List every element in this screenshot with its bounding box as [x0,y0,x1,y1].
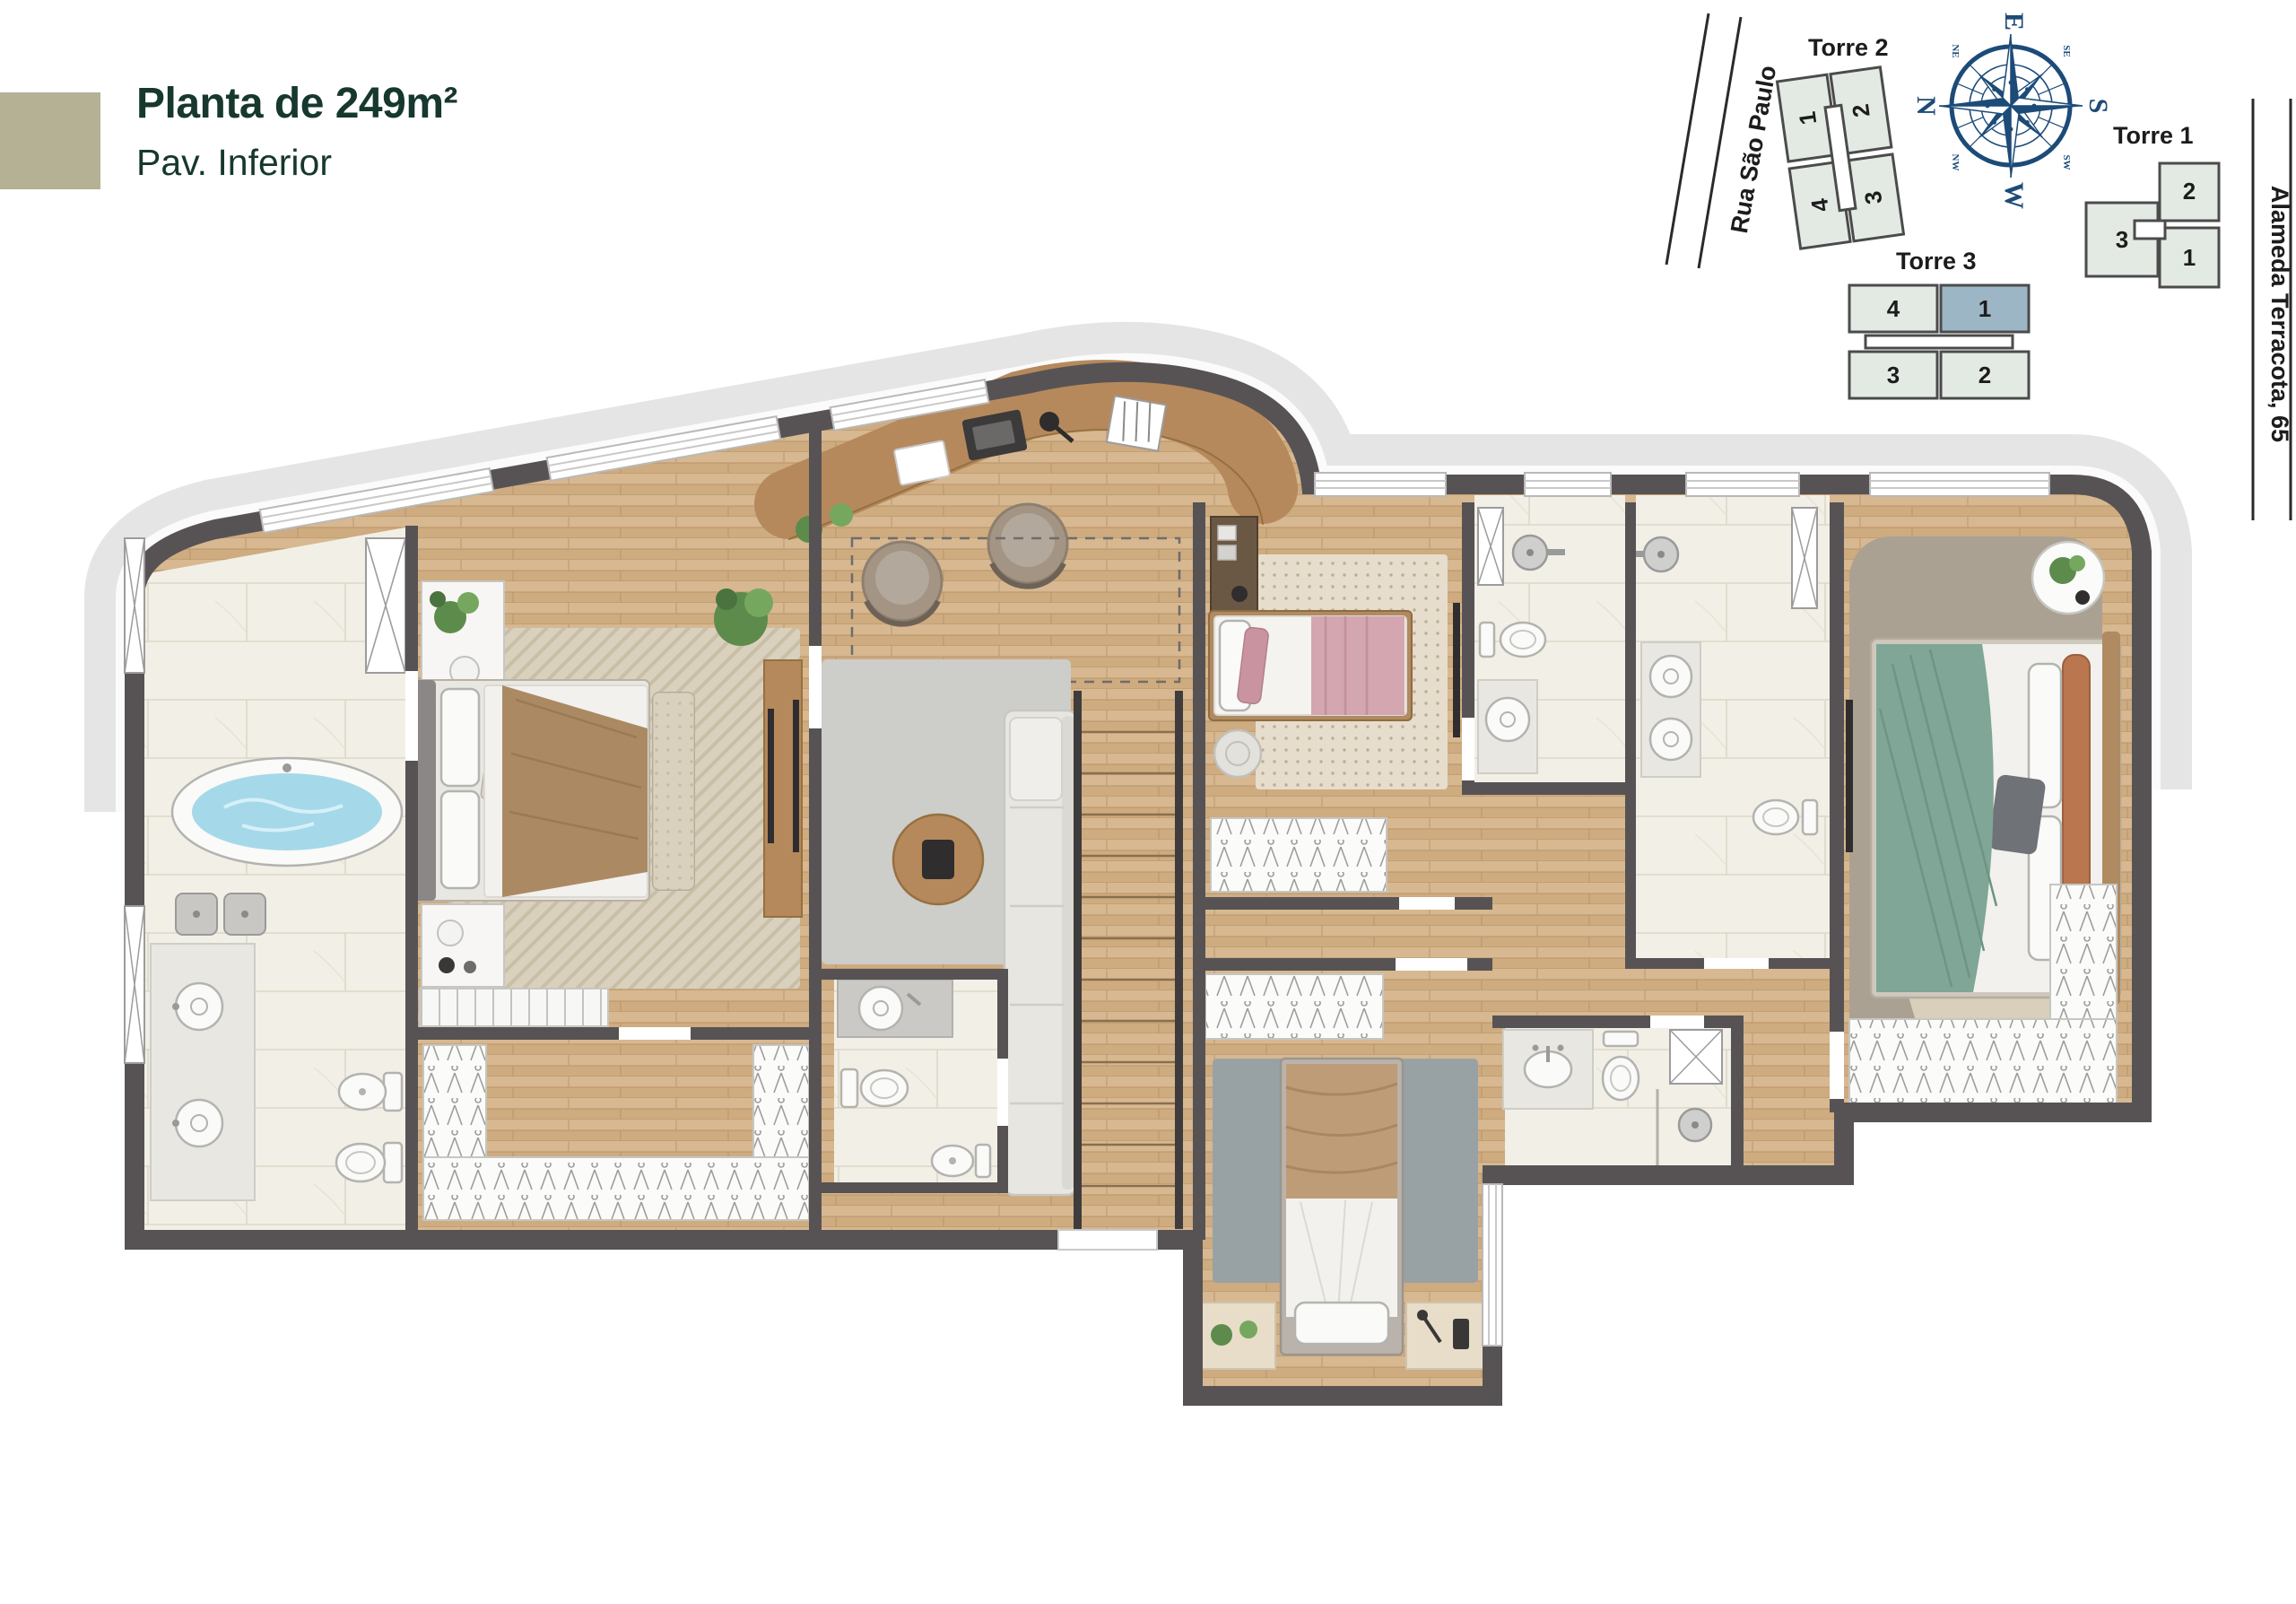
compass-east-label: E [1999,13,2029,31]
compass-rose-icon: E S W N NE SE SW NW [1911,13,2113,209]
desk [1211,517,1257,624]
tower-2: Torre 2 1 2 4 3 [1777,34,1903,248]
tower-1-label: Torre 1 [2113,122,2194,149]
single-bed [1281,1059,1403,1355]
tower-3-unit-number: 1 [1979,295,1991,322]
media-panel [764,660,802,917]
vanity-counter [151,944,255,1200]
bed-bench [653,693,694,890]
window-hatch [125,538,144,673]
toilet-icon [1603,1032,1639,1100]
tv-icon [1453,603,1460,737]
plan-graphic: Rua São Paulo Alameda Terracota, 65 [0,0,2296,1604]
toilet-icon [1480,623,1545,657]
street-label: Alameda Terracota, 65 [2266,186,2293,442]
tower-1-unit-number: 3 [2116,226,2128,253]
shower-head-icon [1679,1109,1711,1141]
sink-icon [859,987,902,1030]
low-sideboard [420,989,608,1026]
compass-ne-label: NE [1950,44,1961,57]
tower-3-unit-number: 4 [1887,295,1900,322]
entry-door [1058,1230,1157,1250]
toilet-icon [841,1069,908,1107]
tower-3-unit-number: 2 [1979,362,1991,388]
floor-plan [125,372,2142,1396]
sink-icon [1650,719,1692,760]
pouf [1214,730,1261,777]
tower-3-label: Torre 3 [1896,248,1977,275]
side-table [2032,542,2104,614]
nightstand [1406,1303,1485,1369]
sofa [1004,710,1076,1195]
table-lamp-icon [438,920,463,946]
bidet-icon [932,1145,990,1177]
tower-2-label: Torre 2 [1808,34,1889,61]
street-line [1666,13,1709,265]
wardrobe [1205,974,1383,1039]
bathtub-icon [172,758,402,866]
door [405,671,418,761]
tower-3-core [1865,336,2013,348]
shaft-hatch [1670,1030,1722,1084]
floor-plan-sheet: Planta de 249m² Pav. Inferior [0,0,2296,1604]
street-label: Rua São Paulo [1726,64,1781,235]
street-alameda-terracota: Alameda Terracota, 65 [2253,99,2293,520]
door [1830,1032,1844,1099]
compass-sw-label: SW [2061,154,2072,170]
nightstand [1198,1303,1275,1369]
compass-nw-label: NW [1950,154,1961,171]
stair-rail [1074,691,1082,1229]
wardrobe [753,1045,809,1157]
wardrobe [423,1157,809,1220]
phone-icon [1453,1319,1469,1349]
door [997,1059,1008,1126]
master-bedroom [414,581,802,1026]
office-chair [988,504,1067,587]
window-hatch [125,906,144,1063]
wardrobe [1211,818,1387,892]
tower-1-unit-number: 1 [2183,244,2196,271]
door [1704,958,1769,969]
staircase [1074,691,1183,1229]
window [1870,473,2049,496]
door [1462,718,1474,780]
tower-3-unit-number: 3 [1887,362,1900,388]
door [1396,958,1467,971]
window [1686,473,1799,496]
tower-1-core [2135,221,2165,239]
tv-icon [1846,700,1853,852]
decor-icon [439,957,455,973]
compass-south-label: S [2083,99,2113,114]
sink-icon [1650,656,1692,697]
tower-1: Torre 1 2 3 1 [2086,122,2219,287]
decor-icon [464,961,476,973]
stair-rail [1175,691,1183,1229]
window [1315,473,1446,496]
shaft-hatch [1478,508,1503,585]
open-wardrobe [2050,885,2117,1019]
door [1650,1016,1704,1028]
bidet-icon [339,1073,402,1111]
office-chair [863,542,942,624]
door [619,1027,691,1040]
wall-shelf [1107,396,1166,450]
window [1483,1184,1502,1346]
compass-se-label: SE [2061,45,2072,57]
single-bed [1209,611,1412,720]
compass-west-label: W [1999,182,2029,209]
door [1399,897,1455,910]
open-wardrobe [1849,1019,2117,1107]
door [809,646,822,728]
bedroom-3 [1846,536,2120,1111]
compass-north-label: N [1911,96,1941,116]
sink-icon [1486,698,1529,741]
double-bed [414,680,649,901]
toilet-icon [336,1143,402,1182]
tower-1-unit-number: 2 [2183,178,2196,205]
toilet-icon [1753,800,1817,834]
nightstand [422,904,504,987]
tower-3: Torre 3 4 1 3 2 [1849,248,2029,398]
street-rua-sao-paulo: Rua São Paulo [1666,13,1781,268]
shaft-hatch [366,538,405,673]
shaft-hatch [1792,508,1817,608]
window [1525,473,1611,496]
coffee-table [893,815,983,904]
